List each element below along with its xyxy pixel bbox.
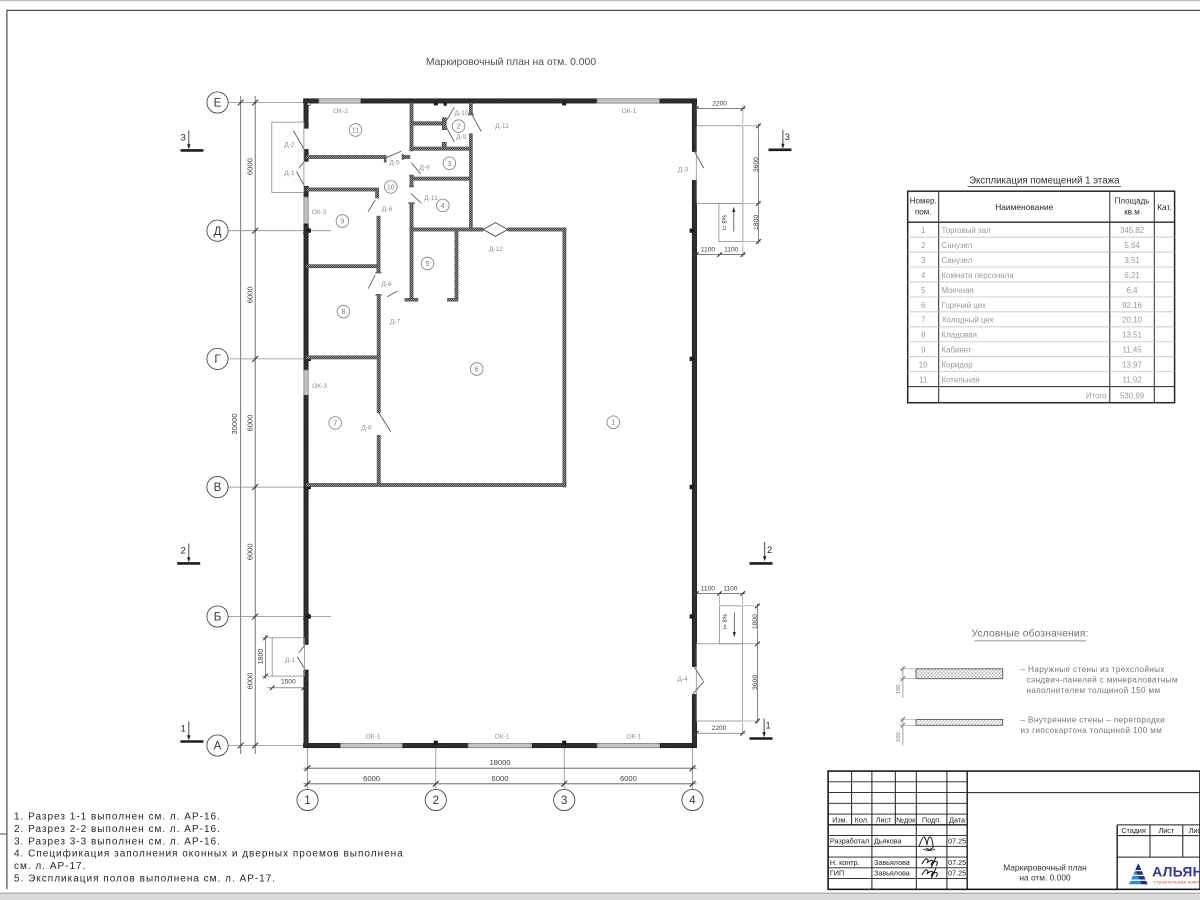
- svg-text:11: 11: [352, 128, 359, 135]
- svg-text:100: 100: [896, 732, 902, 742]
- svg-text:6,4: 6,4: [1127, 286, 1139, 295]
- svg-text:наполнителем толщиной 150 мм: наполнителем толщиной 150 мм: [1027, 686, 1161, 695]
- svg-text:Д-4: Д-4: [677, 676, 688, 683]
- svg-text:1: 1: [765, 721, 770, 731]
- svg-text:2200: 2200: [712, 725, 727, 732]
- svg-text:Д-7: Д-7: [390, 319, 401, 326]
- svg-text:Завьялова: Завьялова: [874, 858, 910, 867]
- svg-text:Д-11: Д-11: [495, 123, 509, 130]
- svg-text:Завьялова: Завьялова: [874, 869, 910, 878]
- svg-text:ОК-3: ОК-3: [312, 209, 327, 216]
- svg-text:530,69: 530,69: [1120, 391, 1145, 400]
- svg-text:1100: 1100: [723, 586, 738, 593]
- svg-text:5,64: 5,64: [1124, 241, 1140, 250]
- svg-text:3600: 3600: [753, 157, 760, 172]
- svg-text:Кабинет: Кабинет: [942, 346, 972, 355]
- svg-text:5: 5: [921, 286, 926, 295]
- svg-text:6000: 6000: [246, 158, 255, 175]
- svg-text:3: 3: [785, 132, 790, 142]
- svg-text:Лист: Лист: [1159, 826, 1175, 835]
- svg-text:30000: 30000: [230, 413, 239, 434]
- svg-text:Котельная: Котельная: [942, 376, 980, 385]
- svg-text:Подп.: Подп.: [922, 815, 941, 824]
- svg-text:Кат.: Кат.: [1157, 202, 1172, 212]
- svg-text:сэндвич-панелей с минераловатн: сэндвич-панелей с минераловатным: [1027, 675, 1178, 684]
- svg-text:Д-2: Д-2: [284, 141, 295, 148]
- svg-text:Стадия: Стадия: [1121, 826, 1146, 835]
- svg-text:13,51: 13,51: [1122, 331, 1142, 340]
- svg-text:4: 4: [441, 203, 445, 210]
- svg-text:11,45: 11,45: [1122, 346, 1142, 355]
- svg-text:Лист: Лист: [876, 815, 892, 824]
- svg-text:Б: Б: [214, 612, 222, 624]
- svg-text:Маркировочный план на отм. 0.0: Маркировочный план на отм. 0.000: [426, 57, 596, 68]
- svg-text:6000: 6000: [246, 286, 255, 303]
- svg-text:Условные обозначения:: Условные обозначения:: [971, 628, 1088, 640]
- svg-text:1100: 1100: [701, 586, 716, 593]
- svg-text:Дьякова: Дьякова: [874, 836, 901, 845]
- svg-text:АЛЬЯНС: АЛЬЯНС: [1152, 865, 1200, 880]
- svg-text:2. Разрез 2-2 выполнен см. л.: 2. Разрез 2-2 выполнен см. л. АР-16.: [14, 824, 221, 835]
- svg-text:Д-9: Д-9: [419, 165, 430, 172]
- svg-text:ОК-2: ОК-2: [333, 108, 348, 115]
- svg-text:пом.: пом.: [915, 207, 932, 216]
- svg-text:на отм. 0.000: на отм. 0.000: [1019, 873, 1071, 883]
- svg-text:Дата: Дата: [949, 815, 965, 824]
- svg-text:07.25: 07.25: [948, 836, 966, 845]
- svg-text:Д-6: Д-6: [382, 206, 393, 213]
- svg-text:8: 8: [921, 331, 926, 340]
- svg-text:Комната персонала: Комната персонала: [942, 271, 1015, 280]
- svg-text:ОК-1: ОК-1: [366, 734, 381, 741]
- svg-text:1100: 1100: [701, 247, 716, 254]
- svg-text:кв.м: кв.м: [1124, 207, 1139, 216]
- svg-text:В: В: [214, 482, 222, 494]
- svg-text:07.25: 07.25: [948, 869, 966, 878]
- svg-text:4: 4: [921, 271, 926, 280]
- svg-text:20,10: 20,10: [1122, 316, 1142, 325]
- svg-text:4. Спецификация заполнения око: 4. Спецификация заполнения оконных и две…: [14, 848, 404, 860]
- svg-text:3: 3: [921, 256, 926, 265]
- svg-text:Д-8: Д-8: [361, 424, 372, 431]
- svg-text:ГИП: ГИП: [830, 869, 844, 878]
- svg-text:ОК-1: ОК-1: [622, 108, 637, 115]
- svg-text:5: 5: [426, 261, 430, 268]
- svg-text:Номер.: Номер.: [910, 196, 937, 205]
- svg-text:Моечная: Моечная: [942, 286, 974, 295]
- svg-text:см. л. АР-17.: см. л. АР-17.: [14, 861, 86, 872]
- svg-text:– Внутренние стены – перегород: – Внутренние стены – перегородки: [1021, 715, 1166, 724]
- svg-text:6000: 6000: [620, 774, 637, 783]
- svg-text:1: 1: [921, 226, 925, 235]
- svg-text:3: 3: [561, 795, 567, 807]
- svg-text:№док: №док: [896, 815, 916, 824]
- svg-text:Итого: Итого: [1086, 391, 1107, 400]
- svg-text:Горячий цех: Горячий цех: [942, 301, 986, 310]
- svg-text:1800: 1800: [753, 215, 760, 230]
- svg-text:9: 9: [921, 346, 926, 355]
- svg-text:ОК-1: ОК-1: [495, 734, 510, 741]
- svg-text:1500: 1500: [281, 679, 296, 686]
- svg-text:Изм.: Изм.: [832, 815, 847, 824]
- svg-text:18000: 18000: [489, 758, 510, 767]
- svg-text:07.25: 07.25: [948, 858, 966, 867]
- svg-text:Санузел: Санузел: [942, 256, 973, 265]
- svg-text:Лист: Лист: [1189, 826, 1200, 835]
- svg-text:10: 10: [919, 361, 928, 370]
- svg-text:ОК-1: ОК-1: [626, 734, 641, 741]
- svg-text:Д-5: Д-5: [389, 159, 400, 166]
- svg-text:6000: 6000: [246, 673, 255, 690]
- svg-text:Н. контр.: Н. контр.: [830, 858, 860, 867]
- svg-text:2: 2: [433, 795, 439, 807]
- svg-text:Коридор: Коридор: [942, 361, 974, 370]
- svg-text:2: 2: [921, 241, 925, 250]
- svg-text:Е: Е: [214, 98, 222, 110]
- svg-text:Кол.: Кол.: [855, 815, 869, 824]
- svg-text:i= 8%: i= 8%: [723, 613, 729, 629]
- svg-text:Г: Г: [214, 354, 221, 366]
- svg-text:ОК-3: ОК-3: [312, 383, 327, 390]
- svg-text:Холодный цех: Холодный цех: [942, 316, 994, 325]
- svg-text:6000: 6000: [246, 543, 255, 560]
- svg-text:4: 4: [689, 795, 696, 807]
- svg-text:3: 3: [447, 161, 451, 168]
- svg-text:6000: 6000: [363, 774, 380, 783]
- svg-text:3600: 3600: [752, 675, 759, 690]
- svg-text:1100: 1100: [724, 247, 739, 254]
- svg-text:Д: Д: [214, 226, 222, 238]
- svg-text:1800: 1800: [258, 649, 265, 665]
- svg-text:1800: 1800: [752, 614, 759, 629]
- svg-text:Экспликация помещений 1 этажа: Экспликация помещений 1 этажа: [969, 175, 1120, 186]
- svg-text:Д-6: Д-6: [381, 281, 392, 288]
- svg-text:8: 8: [341, 309, 345, 316]
- svg-text:Маркировочный план: Маркировочный план: [1003, 863, 1087, 873]
- svg-text:Разработал: Разработал: [830, 836, 869, 845]
- svg-text:Д-12: Д-12: [489, 246, 503, 253]
- svg-text:строительная компания: строительная компания: [1154, 880, 1200, 885]
- svg-text:6000: 6000: [492, 774, 509, 783]
- svg-text:Д-11: Д-11: [424, 195, 438, 202]
- svg-text:1: 1: [304, 795, 310, 807]
- svg-text:3: 3: [181, 133, 186, 143]
- svg-text:из гипсокартона толщиной 100 м: из гипсокартона толщиной 100 мм: [1021, 726, 1163, 735]
- svg-text:5. Экспликация полов выполнена: 5. Экспликация полов выполнена см. л. АР…: [14, 874, 276, 885]
- svg-text:Торговый зал: Торговый зал: [942, 226, 992, 235]
- svg-text:1. Разрез 1-1 выполнен см. л.: 1. Разрез 1-1 выполнен см. л. АР-16.: [14, 812, 221, 823]
- svg-text:Площадь: Площадь: [1115, 196, 1150, 205]
- svg-text:Наименование: Наименование: [995, 202, 1053, 212]
- svg-text:6000: 6000: [246, 415, 255, 432]
- svg-text:2: 2: [457, 124, 461, 131]
- svg-text:2: 2: [181, 546, 186, 556]
- svg-text:Д-9: Д-9: [456, 134, 467, 141]
- svg-text:Кладовая: Кладовая: [942, 331, 977, 340]
- svg-text:6,21: 6,21: [1124, 271, 1139, 280]
- svg-text:Д-3: Д-3: [678, 167, 689, 174]
- svg-text:7: 7: [921, 316, 925, 325]
- svg-text:2: 2: [767, 545, 772, 555]
- svg-text:7: 7: [333, 420, 337, 427]
- svg-text:6: 6: [475, 367, 479, 374]
- svg-text:1: 1: [181, 724, 186, 734]
- svg-text:10: 10: [387, 184, 395, 191]
- svg-text:Д-1: Д-1: [285, 657, 296, 664]
- svg-text:6: 6: [921, 301, 926, 310]
- svg-text:– Наружные стены из трехслойны: – Наружные стены из трехслойных: [1021, 665, 1165, 674]
- svg-text:3. Разрез 3-3 выполнен см. л.: 3. Разрез 3-3 выполнен см. л. АР-16.: [14, 836, 221, 847]
- svg-text:9: 9: [340, 219, 344, 226]
- svg-text:92,16: 92,16: [1122, 301, 1142, 310]
- svg-text:3,51: 3,51: [1124, 256, 1139, 265]
- svg-text:2200: 2200: [712, 101, 727, 108]
- svg-text:11: 11: [919, 376, 927, 385]
- svg-text:150: 150: [896, 684, 902, 694]
- svg-text:11,92: 11,92: [1122, 376, 1141, 385]
- svg-text:13,97: 13,97: [1122, 361, 1142, 370]
- svg-text:1: 1: [611, 420, 615, 427]
- svg-text:Д-10: Д-10: [455, 110, 469, 117]
- svg-text:345,82: 345,82: [1120, 226, 1144, 235]
- svg-text:Санузел: Санузел: [942, 241, 973, 250]
- svg-text:i= 8%: i= 8%: [723, 214, 729, 230]
- svg-text:А: А: [214, 741, 222, 753]
- svg-text:Д-1: Д-1: [284, 170, 295, 177]
